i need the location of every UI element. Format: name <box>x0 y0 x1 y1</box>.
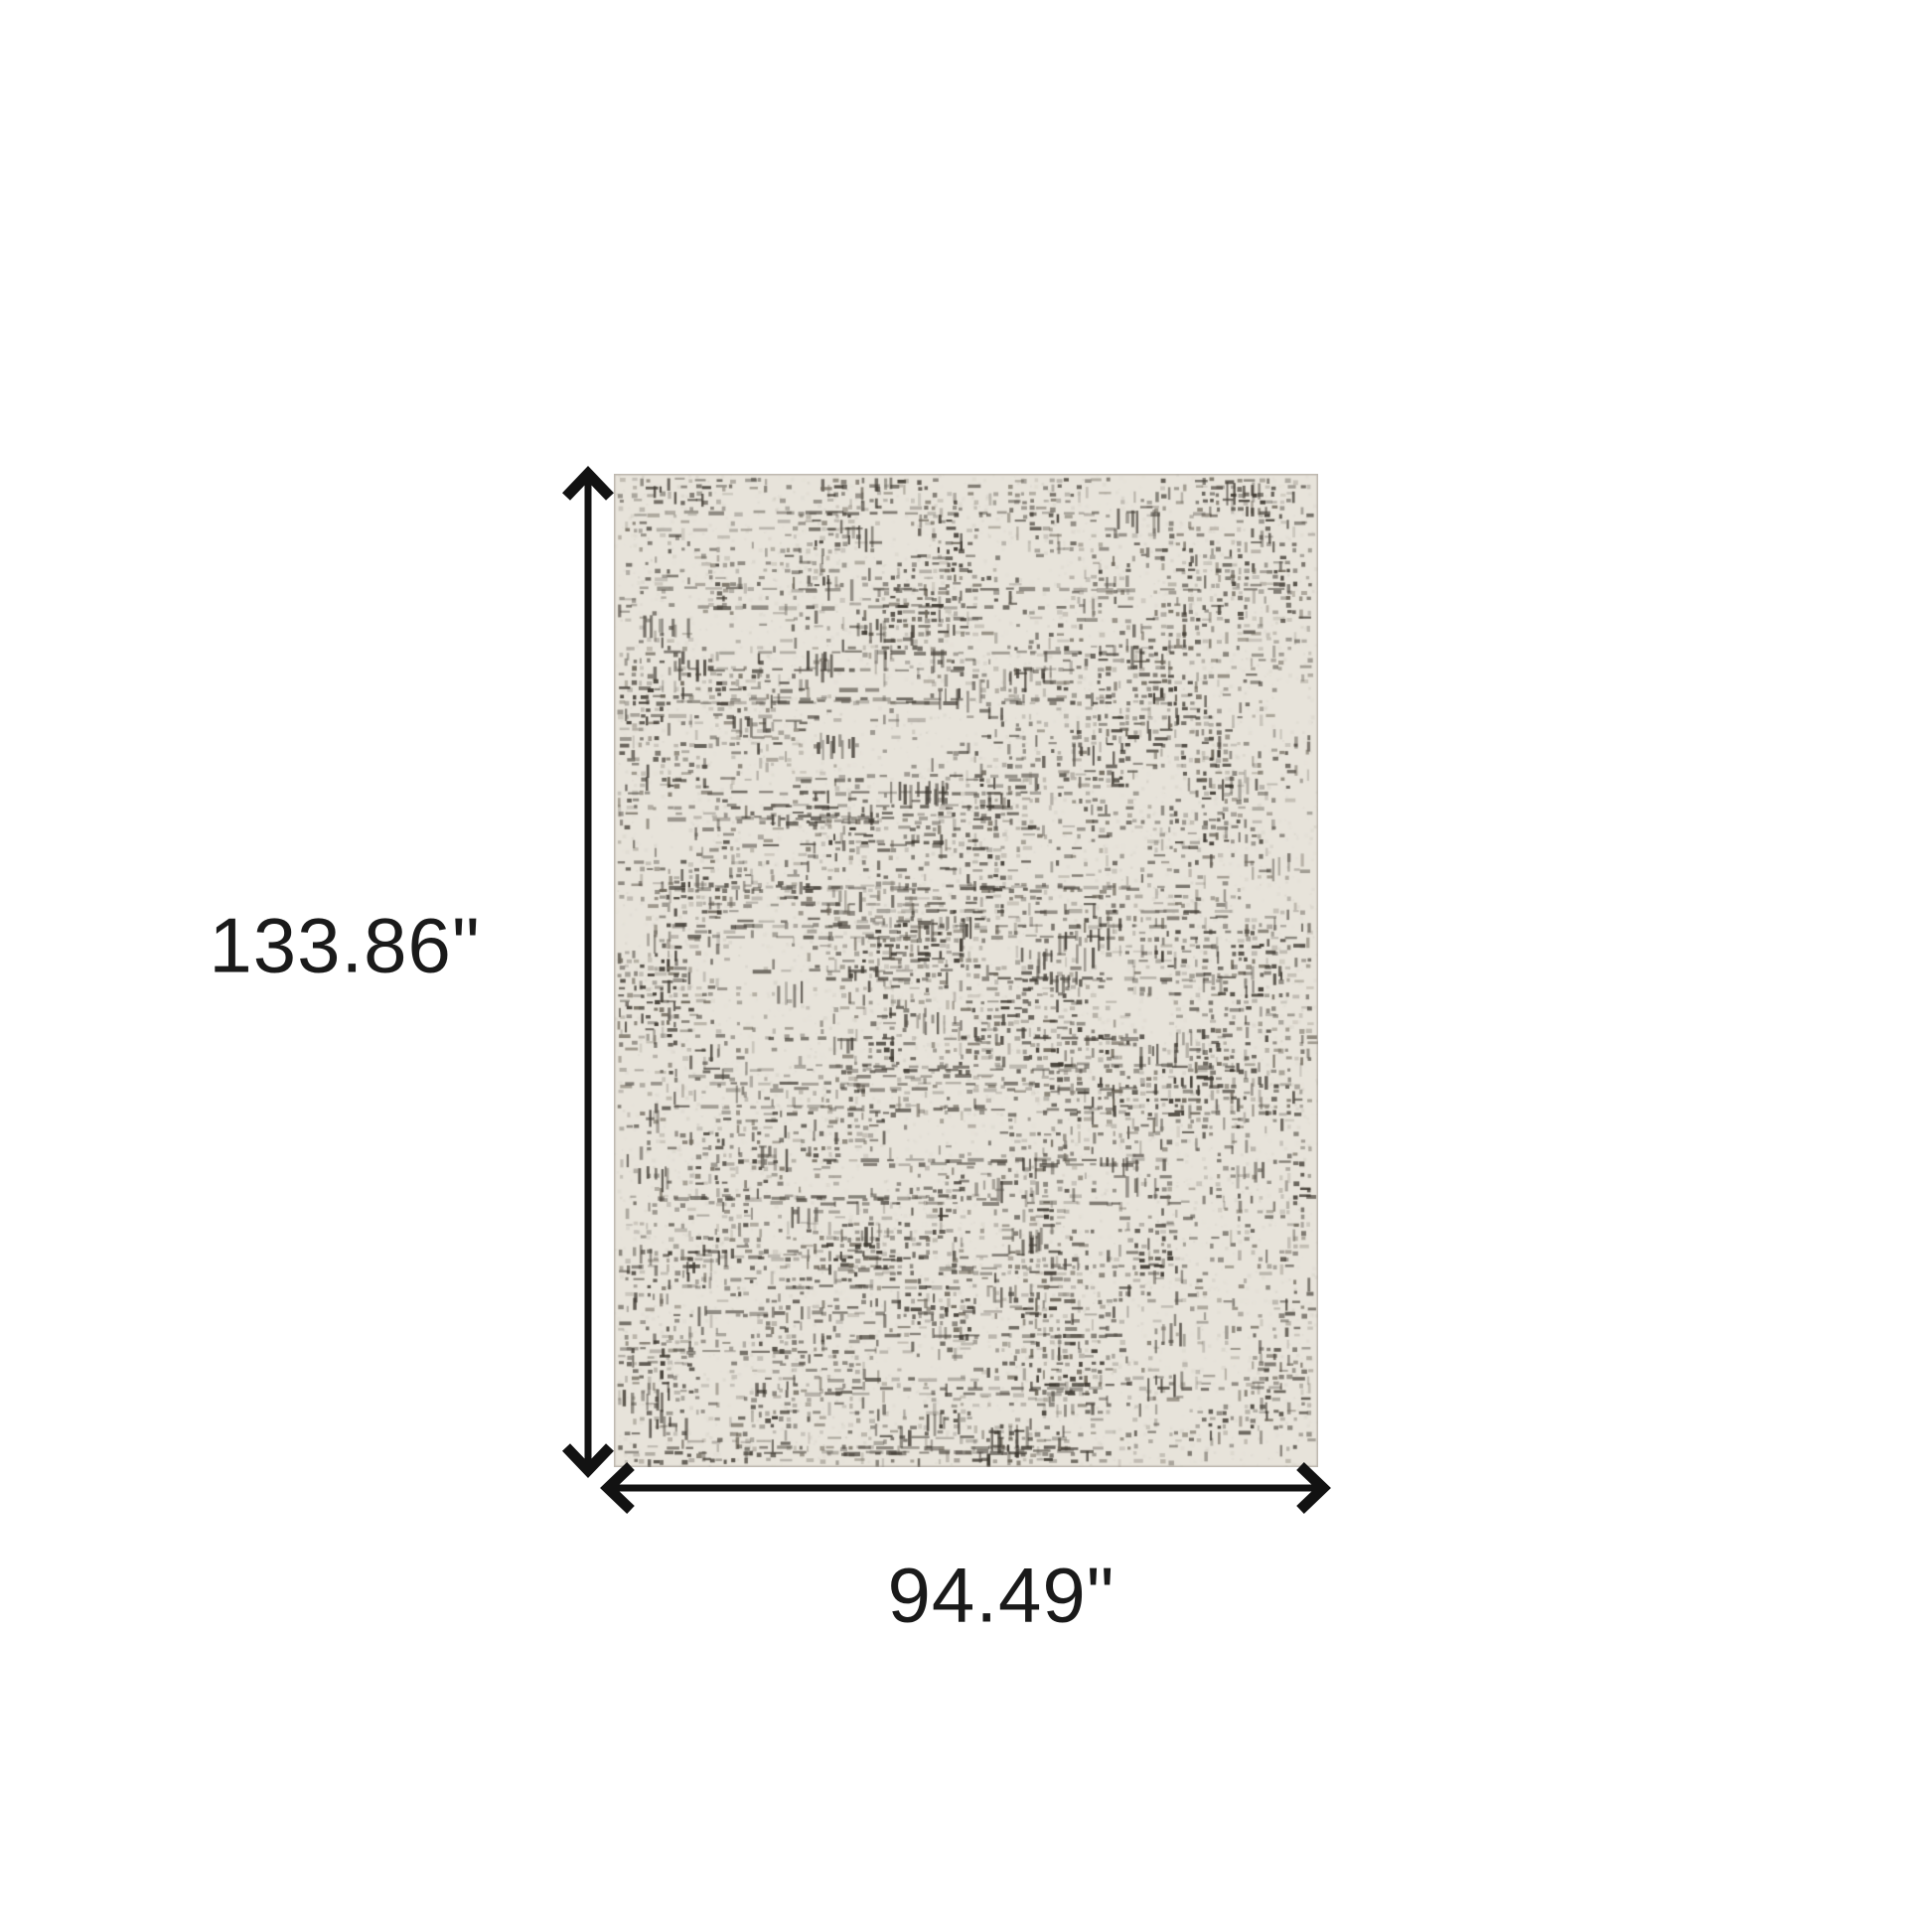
width-arrow-left-head-icon <box>608 1466 631 1510</box>
height-arrow-up-head-icon <box>566 474 610 497</box>
rug-product-image <box>614 474 1318 1467</box>
width-arrow <box>608 1466 1323 1510</box>
width-dimension-label: 94.49" <box>888 1551 1115 1641</box>
width-arrow-right-head-icon <box>1300 1466 1323 1510</box>
height-arrow-down-head-icon <box>566 1447 610 1470</box>
height-dimension-label: 133.86" <box>209 901 480 991</box>
height-arrow <box>566 474 610 1470</box>
rug-dimension-diagram: 133.86" 94.49" <box>0 0 1932 1932</box>
